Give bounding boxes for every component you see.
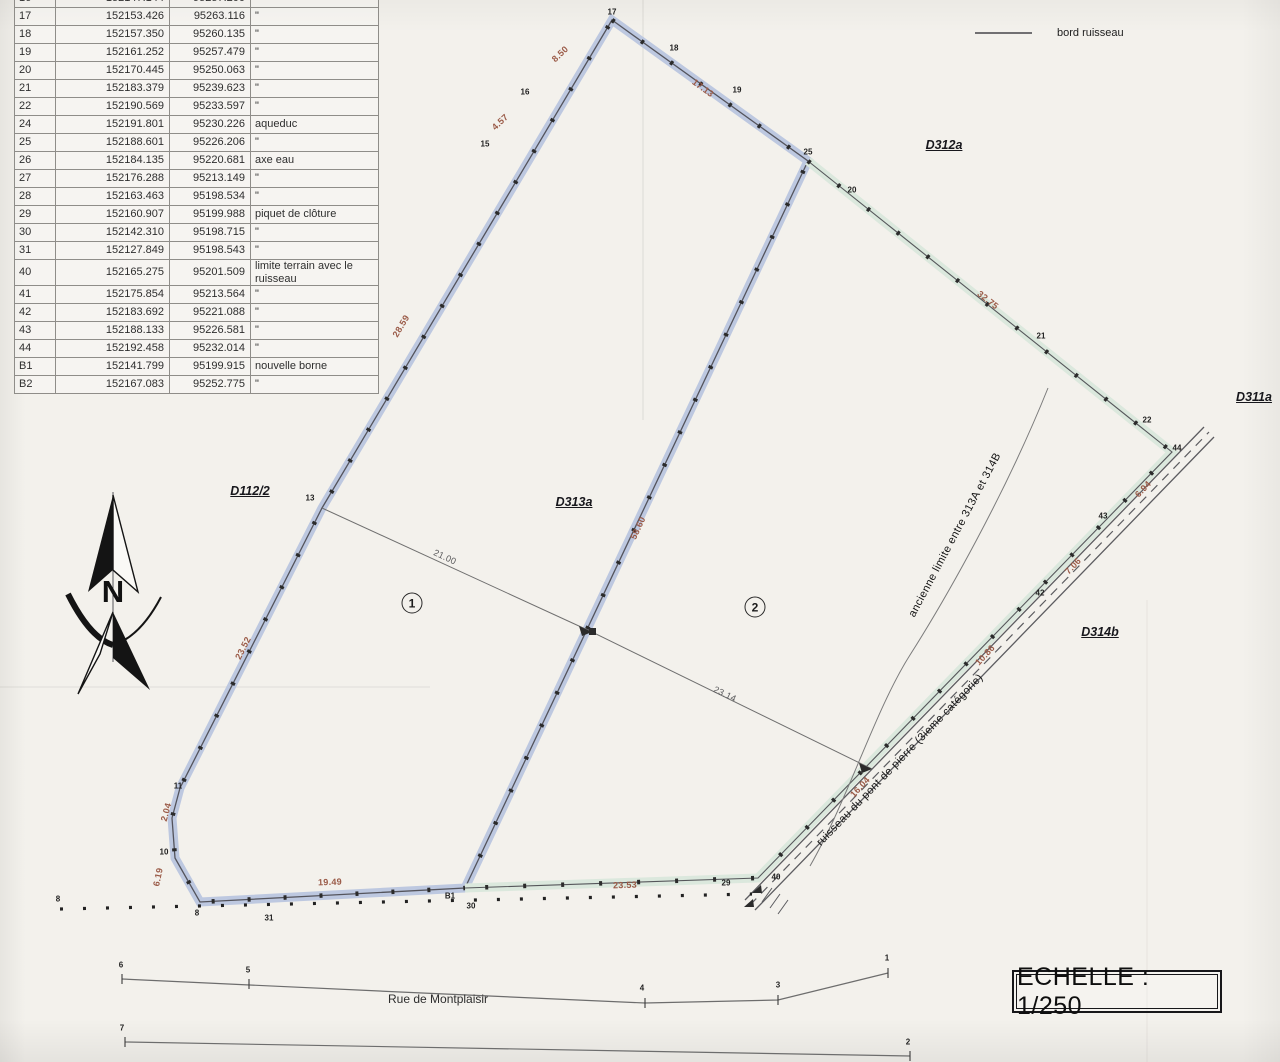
table-cell: 95260.135: [170, 26, 251, 44]
table-row: 17152153.42695263.116": [15, 8, 379, 26]
table-cell: ": [251, 340, 379, 358]
point-label: 17: [608, 8, 617, 17]
table-cell: ": [251, 188, 379, 206]
table-row: 26152184.13595220.681axe eau: [15, 152, 379, 170]
table-row: 28152163.46395198.534": [15, 188, 379, 206]
table-cell: ": [251, 322, 379, 340]
table-cell: 152165.275: [56, 260, 170, 286]
table-cell: 95233.597: [170, 98, 251, 116]
point-label: 1: [885, 954, 889, 963]
table-row: B2152167.08395252.775": [15, 376, 379, 394]
table-cell: ": [251, 8, 379, 26]
table-cell: 95226.206: [170, 134, 251, 152]
street-label: Rue de Montplaisir: [388, 992, 488, 1006]
point-label: 11: [174, 782, 182, 791]
table-row: 18152157.35095260.135": [15, 26, 379, 44]
table-cell: 28: [15, 188, 56, 206]
table-row: 20152170.44595250.063": [15, 62, 379, 80]
point-label: 13: [306, 494, 315, 503]
table-cell: 152192.458: [56, 340, 170, 358]
table-cell: ": [251, 286, 379, 304]
table-cell: 95201.509: [170, 260, 251, 286]
table-cell: 95198.715: [170, 224, 251, 242]
table-cell: 30: [15, 224, 56, 242]
dimension-label: 19.49: [318, 877, 342, 888]
table-cell: 20: [15, 62, 56, 80]
dimension-label: 23.53: [613, 880, 637, 891]
point-label: 22: [1143, 416, 1152, 425]
survey-plan-page: 16152147.14495257.20017152153.42695263.1…: [0, 0, 1280, 1062]
table-cell: 27: [15, 170, 56, 188]
table-cell: 95263.116: [170, 8, 251, 26]
point-label: B1: [445, 892, 455, 901]
table-row: 21152183.37995239.623": [15, 80, 379, 98]
table-cell: 31: [15, 242, 56, 260]
table-cell: 95198.534: [170, 188, 251, 206]
table-cell: 95199.988: [170, 206, 251, 224]
table-cell: 152188.601: [56, 134, 170, 152]
table-cell: 152167.083: [56, 376, 170, 394]
table-cell: 152170.445: [56, 62, 170, 80]
parcel-label: D112/2: [230, 484, 269, 498]
fence-dotted-line: [60, 894, 752, 909]
table-row: 44152192.45895232.014": [15, 340, 379, 358]
table-cell: ": [251, 26, 379, 44]
table-row: 29152160.90795199.988piquet de clôture: [15, 206, 379, 224]
table-cell: 29: [15, 206, 56, 224]
table-cell: 152183.692: [56, 304, 170, 322]
table-cell: ": [251, 224, 379, 242]
table-row: 16152147.14495257.200: [15, 0, 379, 8]
road-lines: [122, 968, 910, 1061]
point-label: 7: [120, 1024, 124, 1033]
point-label: 10: [160, 848, 169, 857]
point-label: 25: [804, 148, 813, 157]
table-cell: ": [251, 80, 379, 98]
scale-label: ECHELLE : 1/250: [1016, 974, 1218, 1009]
table-cell: 25: [15, 134, 56, 152]
table-row: 19152161.25295257.479": [15, 44, 379, 62]
table-row: 41152175.85495213.564": [15, 286, 379, 304]
point-label: 3: [776, 981, 780, 990]
coordinate-table: 16152147.14495257.20017152153.42695263.1…: [14, 0, 379, 394]
point-label: 40: [772, 873, 781, 882]
table-cell: ": [251, 304, 379, 322]
table-cell: 18: [15, 26, 56, 44]
parcel-number-badge: 1: [402, 593, 423, 614]
table-cell: 44: [15, 340, 56, 358]
point-label: 18: [670, 44, 679, 53]
table-cell: 152157.350: [56, 26, 170, 44]
table-cell: 21: [15, 80, 56, 98]
table-cell: 17: [15, 8, 56, 26]
table-cell: ": [251, 242, 379, 260]
green-boundary-band: [465, 161, 1172, 888]
point-label: 2: [906, 1038, 910, 1047]
old-limit-line: [810, 388, 1048, 866]
table-cell: 152184.135: [56, 152, 170, 170]
table-cell: 152147.144: [56, 0, 170, 8]
table-cell: ": [251, 376, 379, 394]
table-cell: limite terrain avec le ruisseau: [251, 260, 379, 286]
parcel-label: D313a: [556, 495, 593, 509]
table-cell: 40: [15, 260, 56, 286]
table-cell: 152161.252: [56, 44, 170, 62]
table-cell: 152141.799: [56, 358, 170, 376]
table-cell: 95221.088: [170, 304, 251, 322]
table-cell: 19: [15, 44, 56, 62]
table-cell: 152191.801: [56, 116, 170, 134]
table-cell: ": [251, 62, 379, 80]
table-cell: 43: [15, 322, 56, 340]
table-cell: 152127.849: [56, 242, 170, 260]
point-label: 8: [195, 909, 199, 918]
point-label: 21: [1037, 332, 1046, 341]
table-cell: ": [251, 134, 379, 152]
table-row: 25152188.60195226.206": [15, 134, 379, 152]
table-cell: 152175.854: [56, 286, 170, 304]
point-label: 15: [481, 140, 490, 149]
table-cell: 16: [15, 0, 56, 8]
table-cell: ": [251, 170, 379, 188]
parcel-label: D312a: [926, 138, 963, 152]
point-label: 20: [848, 186, 857, 195]
point-label: 31: [265, 914, 274, 923]
point-label: 30: [467, 902, 476, 911]
scale-box: ECHELLE : 1/250: [1012, 970, 1222, 1013]
point-label: 4: [640, 984, 644, 993]
table-cell: 95257.479: [170, 44, 251, 62]
table-row: 27152176.28895213.149": [15, 170, 379, 188]
table-row: 24152191.80195230.226aqueduc: [15, 116, 379, 134]
table-cell: aqueduc: [251, 116, 379, 134]
point-label: 43: [1099, 512, 1108, 521]
table-row: 30152142.31095198.715": [15, 224, 379, 242]
table-cell: 42: [15, 304, 56, 322]
parcel-number-badge: 2: [745, 597, 766, 618]
table-cell: 95232.014: [170, 340, 251, 358]
table-cell: 95239.623: [170, 80, 251, 98]
table-cell: 152183.379: [56, 80, 170, 98]
table-row: 31152127.84995198.543": [15, 242, 379, 260]
legend-item-bord-ruisseau: bord ruisseau: [1057, 27, 1124, 39]
point-label: 8: [56, 895, 60, 904]
table-cell: 22: [15, 98, 56, 116]
point-label: 44: [1173, 444, 1182, 453]
table-cell: 95213.149: [170, 170, 251, 188]
table-cell: 95199.915: [170, 358, 251, 376]
table-cell: 152188.133: [56, 322, 170, 340]
table-cell: nouvelle borne: [251, 358, 379, 376]
table-cell: 26: [15, 152, 56, 170]
coordinate-table-body: 16152147.14495257.20017152153.42695263.1…: [15, 0, 379, 394]
table-cell: ": [251, 98, 379, 116]
table-cell: 152176.288: [56, 170, 170, 188]
table-cell: 95213.564: [170, 286, 251, 304]
table-cell: 95198.543: [170, 242, 251, 260]
table-cell: 41: [15, 286, 56, 304]
point-label: 6: [119, 961, 123, 970]
table-cell: 95252.775: [170, 376, 251, 394]
table-cell: 152160.907: [56, 206, 170, 224]
parcel-label: D311a: [1236, 390, 1272, 404]
table-cell: 152153.426: [56, 8, 170, 26]
table-row: 22152190.56995233.597": [15, 98, 379, 116]
table-cell: 152142.310: [56, 224, 170, 242]
table-cell: ": [251, 44, 379, 62]
table-cell: 95250.063: [170, 62, 251, 80]
north-letter: N: [102, 574, 124, 610]
point-label: 29: [722, 879, 731, 888]
table-cell: piquet de clôture: [251, 206, 379, 224]
table-cell: B1: [15, 358, 56, 376]
table-cell: 152163.463: [56, 188, 170, 206]
point-label: 5: [246, 966, 250, 975]
table-row: 42152183.69295221.088": [15, 304, 379, 322]
point-label: 16: [521, 88, 530, 97]
table-cell: 95220.681: [170, 152, 251, 170]
dimension-lines: [322, 508, 872, 773]
table-row: B1152141.79995199.915nouvelle borne: [15, 358, 379, 376]
table-cell: [251, 0, 379, 8]
table-row: 43152188.13395226.581": [15, 322, 379, 340]
table-cell: 95230.226: [170, 116, 251, 134]
table-cell: axe eau: [251, 152, 379, 170]
table-cell: 95257.200: [170, 0, 251, 8]
point-label: 42: [1036, 589, 1045, 598]
table-cell: 152190.569: [56, 98, 170, 116]
table-cell: 24: [15, 116, 56, 134]
table-cell: B2: [15, 376, 56, 394]
point-label: 19: [733, 86, 742, 95]
table-cell: 95226.581: [170, 322, 251, 340]
parcel-label: D314b: [1081, 625, 1119, 639]
table-row: 40152165.27595201.509limite terrain avec…: [15, 260, 379, 286]
